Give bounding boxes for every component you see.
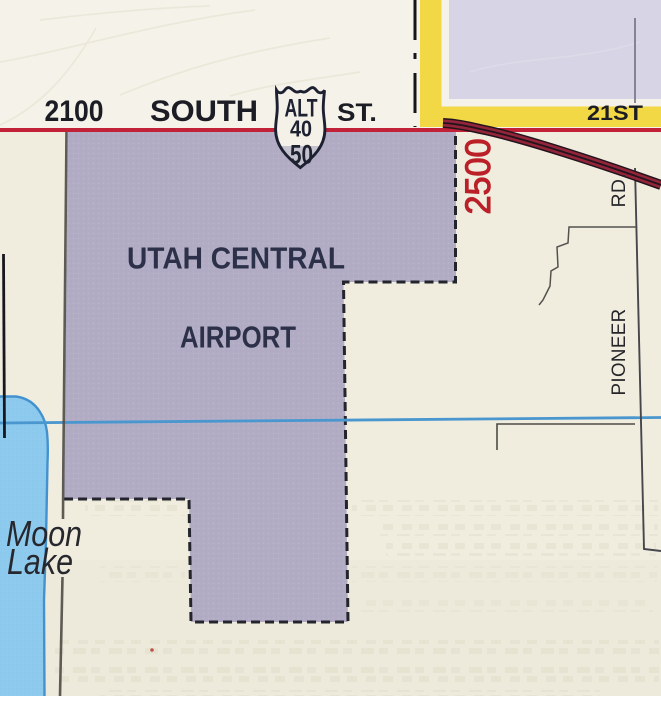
svg-text:PIONEER: PIONEER — [608, 309, 630, 396]
svg-text:SOUTH: SOUTH — [150, 95, 258, 128]
svg-text:Lake: Lake — [7, 541, 73, 582]
svg-text:21ST: 21ST — [587, 102, 643, 125]
svg-text:AIRPORT: AIRPORT — [180, 320, 296, 355]
svg-text:40: 40 — [290, 116, 312, 142]
svg-text:ST.: ST. — [337, 99, 377, 127]
svg-text:2500: 2500 — [459, 139, 498, 215]
svg-text:50: 50 — [290, 140, 313, 170]
svg-text:RD.: RD. — [608, 173, 630, 207]
svg-text:UTAH CENTRAL: UTAH CENTRAL — [127, 241, 345, 276]
svg-text:2100: 2100 — [45, 95, 104, 128]
